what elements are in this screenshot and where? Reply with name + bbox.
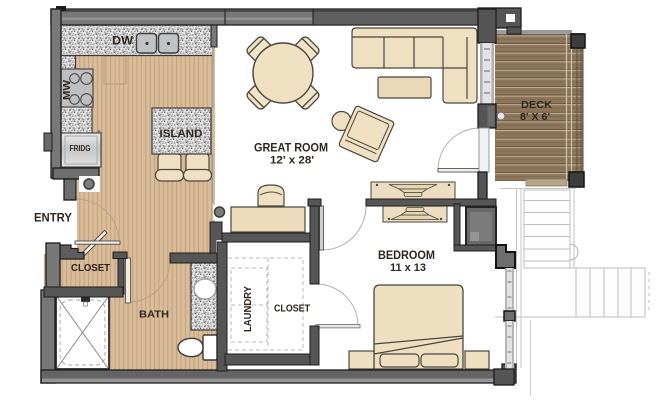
svg-text:ISLAND: ISLAND [160,128,203,140]
svg-text:MW: MW [62,79,73,100]
svg-text:DW: DW [112,36,133,48]
svg-text:ENTRY: ENTRY [34,211,72,225]
svg-text:12' x 28': 12' x 28' [270,155,314,167]
svg-text:BATH: BATH [139,309,169,321]
svg-text:BEDROOM: BEDROOM [378,250,435,262]
svg-text:CLOSET: CLOSET [274,303,310,315]
svg-text:CLOSET: CLOSET [71,262,111,274]
svg-text:DECK: DECK [521,99,552,111]
svg-text:FRIDG: FRIDG [70,144,91,153]
svg-text:8' X 6': 8' X 6' [520,111,550,123]
svg-text:11 x 13: 11 x 13 [390,262,426,274]
svg-text:GREAT ROOM: GREAT ROOM [254,143,328,155]
svg-text:LAUNDRY: LAUNDRY [243,286,254,332]
